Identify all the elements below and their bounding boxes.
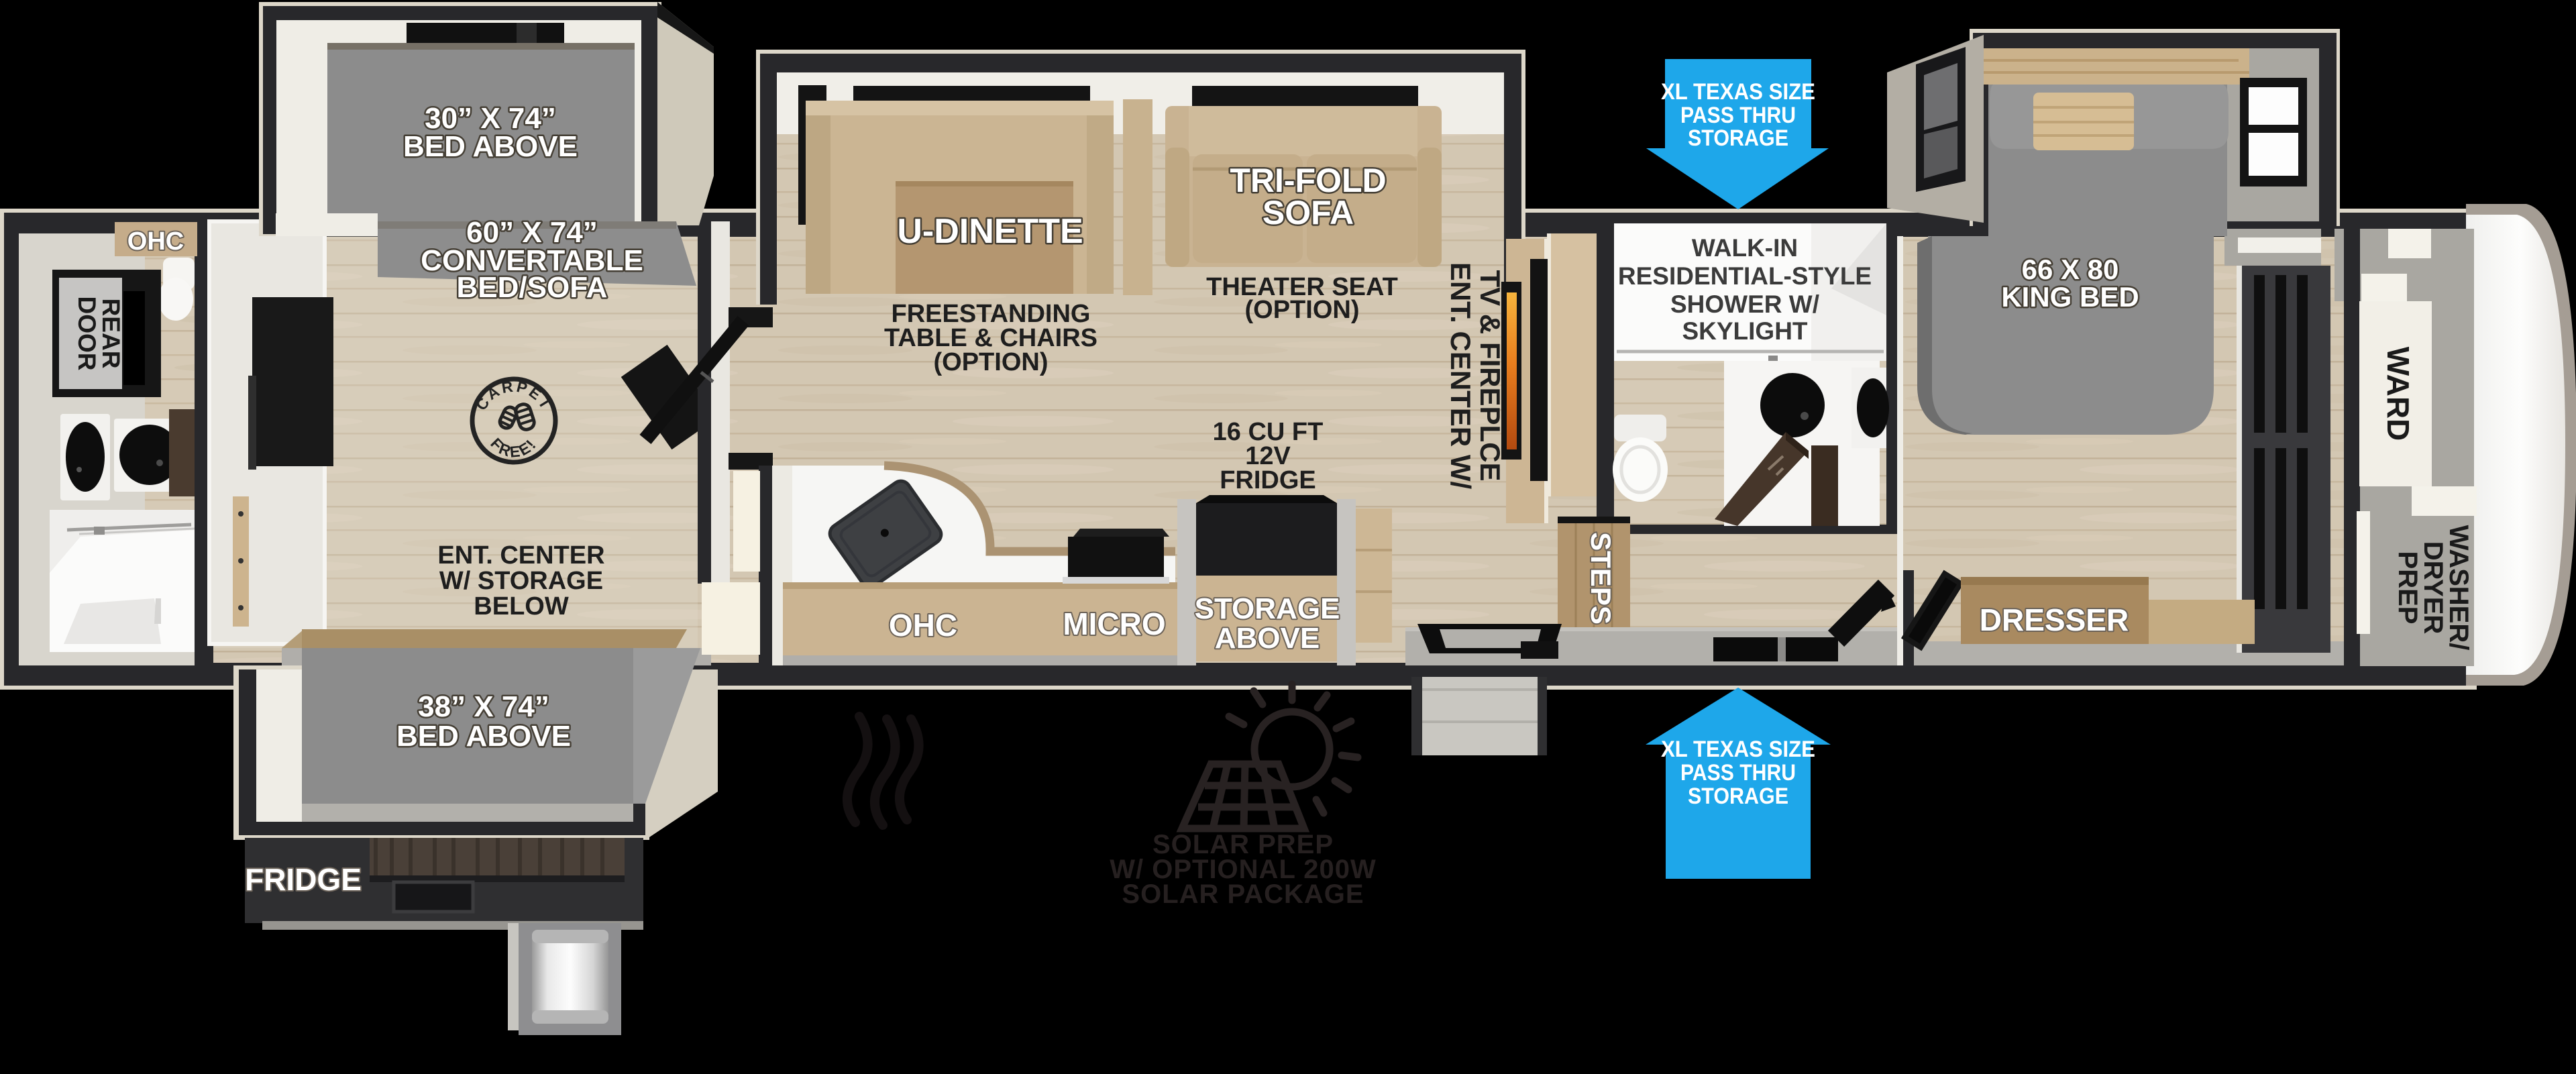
svg-text:BED ABOVE: BED ABOVE (403, 130, 578, 163)
svg-text:(OPTION): (OPTION) (934, 348, 1049, 376)
svg-text:TV & FIREPLCE: TV & FIREPLCE (1474, 270, 1506, 481)
svg-text:STORAGE: STORAGE (1688, 125, 1788, 151)
svg-text:BED ABOVE: BED ABOVE (396, 720, 571, 753)
svg-text:KING BED: KING BED (2001, 281, 2139, 313)
svg-text:MICRO: MICRO (1063, 606, 1165, 641)
svg-text:BELOW: BELOW (474, 592, 569, 621)
svg-text:RESIDENTIAL-STYLE: RESIDENTIAL-STYLE (1618, 262, 1872, 290)
svg-text:REAR: REAR (97, 299, 125, 369)
svg-text:OHC: OHC (127, 227, 184, 256)
svg-text:DOOR: DOOR (73, 297, 101, 371)
svg-text:SOLAR PACKAGE: SOLAR PACKAGE (1122, 879, 1364, 909)
svg-text:FRIDGE: FRIDGE (245, 862, 362, 897)
svg-text:ABOVE: ABOVE (1215, 622, 1320, 655)
svg-text:XL TEXAS SIZE: XL TEXAS SIZE (1661, 737, 1815, 762)
svg-text:SOFA: SOFA (1263, 194, 1354, 231)
svg-text:PASS THRU: PASS THRU (1680, 760, 1796, 786)
svg-text:STEPS: STEPS (1585, 532, 1617, 625)
svg-text:SHOWER W/: SHOWER W/ (1670, 290, 1819, 318)
svg-text:66 X 80: 66 X 80 (2022, 254, 2119, 285)
svg-text:BED/SOFA: BED/SOFA (457, 271, 608, 304)
svg-text:U-DINETTE: U-DINETTE (897, 212, 1083, 251)
svg-text:STORAGE: STORAGE (1688, 784, 1788, 809)
svg-text:DRESSER: DRESSER (1980, 602, 2129, 637)
svg-text:38” X 74”: 38” X 74” (418, 690, 549, 723)
svg-text:OHC: OHC (889, 608, 957, 643)
svg-text:PREP: PREP (2393, 551, 2422, 625)
svg-text:W/ STORAGE: W/ STORAGE (439, 567, 603, 595)
svg-text:FRIDGE: FRIDGE (1220, 466, 1316, 494)
svg-text:SKYLIGHT: SKYLIGHT (1682, 317, 1807, 345)
svg-text:(OPTION): (OPTION) (1245, 296, 1360, 324)
svg-text:XL TEXAS SIZE: XL TEXAS SIZE (1661, 79, 1815, 105)
svg-text:STORAGE: STORAGE (1195, 592, 1340, 625)
svg-text:WALK-IN: WALK-IN (1692, 234, 1798, 262)
svg-text:ENT. CENTER W/: ENT. CENTER W/ (1445, 262, 1477, 490)
svg-text:PASS THRU: PASS THRU (1680, 103, 1796, 128)
svg-text:ENT. CENTER: ENT. CENTER (437, 541, 604, 570)
svg-text:WARD: WARD (2381, 347, 2416, 441)
